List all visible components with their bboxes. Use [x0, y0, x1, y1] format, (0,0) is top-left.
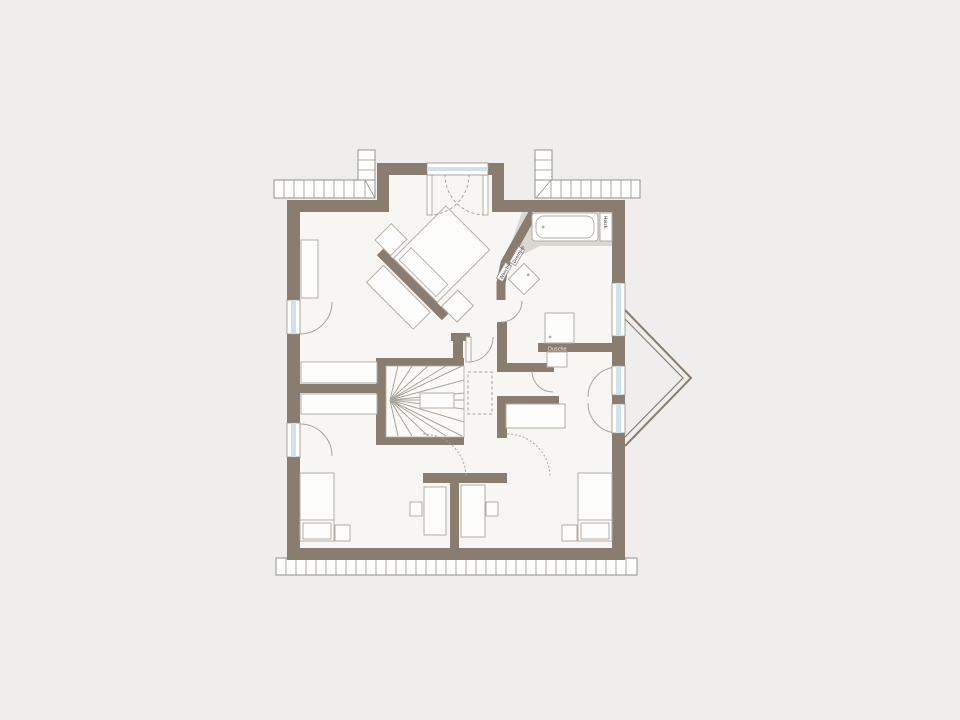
window-left-bottom	[287, 423, 300, 457]
floor-plan-drawing: Drempel Waschb. Heizk.	[0, 0, 960, 720]
sideboard	[506, 404, 565, 428]
door-leaf-bedroom	[466, 337, 471, 362]
bathtub	[532, 213, 598, 241]
washstand-small	[547, 352, 567, 367]
eaves-hatch-bottom	[276, 558, 637, 575]
wardrobe	[301, 240, 318, 298]
staircase	[386, 366, 464, 437]
bathroom-radiator: Heizk.	[600, 213, 612, 241]
balcony-hatch-top-right	[535, 150, 640, 198]
bay-door-upper	[612, 366, 625, 395]
bed-blanket	[303, 523, 331, 539]
bed-blanket	[581, 523, 609, 539]
chair	[410, 502, 422, 516]
window-right-top	[612, 283, 625, 336]
shower	[545, 313, 574, 343]
floor-plan-page: Drempel Waschb. Heizk.	[0, 0, 960, 720]
nightstand	[562, 525, 577, 541]
bathtub-drain	[542, 226, 545, 229]
balcony-door-leaf-left	[427, 175, 432, 215]
bay-door-lower	[612, 404, 625, 433]
balcony-door-window-top	[427, 163, 488, 175]
balcony-door-leaf-right	[483, 175, 488, 215]
balcony-hatch-top-left	[274, 150, 375, 198]
gable-bay-outline	[625, 310, 691, 446]
window-left-top	[287, 300, 300, 334]
closet-row-bottom	[301, 394, 377, 414]
shower-drain	[549, 336, 552, 339]
closet-row-top	[301, 362, 377, 383]
stair-well-rail	[420, 393, 454, 408]
nightstand	[335, 525, 350, 541]
chair	[486, 502, 498, 516]
radiator-label: Heizk.	[602, 216, 608, 230]
